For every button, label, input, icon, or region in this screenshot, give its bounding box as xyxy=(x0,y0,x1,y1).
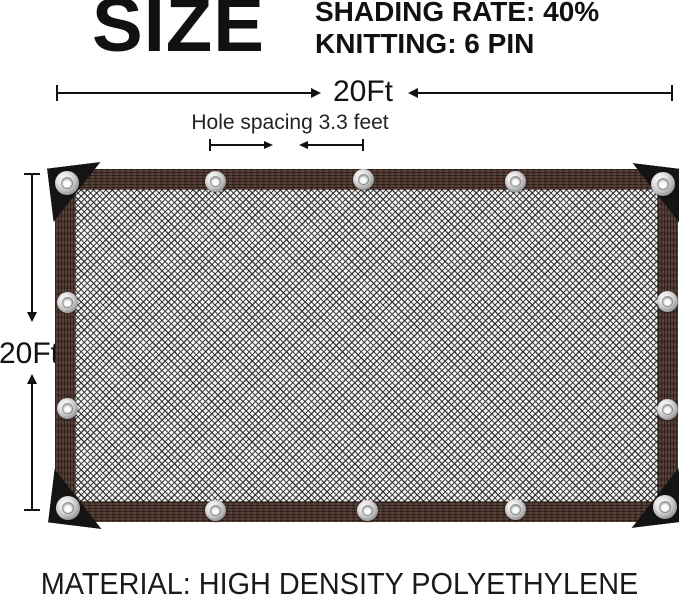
grommet xyxy=(357,500,378,521)
shade-net-graphic xyxy=(55,169,678,522)
arrow-left-icon xyxy=(408,88,418,98)
arrow-right-icon xyxy=(264,141,273,149)
dimension-tick xyxy=(362,139,364,151)
arrow-down-icon xyxy=(27,312,37,322)
dimension-line xyxy=(307,144,363,146)
dimension-line xyxy=(56,92,312,94)
dimension-tick xyxy=(671,85,673,101)
net-mesh xyxy=(75,189,658,502)
height-label: 20Ft xyxy=(0,338,61,370)
grommet-hole xyxy=(211,506,220,515)
grommet-hole xyxy=(658,179,668,189)
grommet xyxy=(56,496,80,520)
grommet xyxy=(505,171,526,192)
material-text: MATERIAL: HIGH DENSITY POLYETHYLENE xyxy=(24,567,655,601)
grommet-hole xyxy=(63,503,73,513)
width-label: 20Ft xyxy=(320,76,406,108)
grommet-hole xyxy=(363,506,372,515)
grommet-hole xyxy=(511,505,520,514)
spec-block: SHADING RATE: 40% KNITTING: 6 PIN xyxy=(315,0,599,60)
grommet-hole xyxy=(211,177,220,186)
grommet xyxy=(57,398,78,419)
dimension-line xyxy=(31,174,33,313)
grommet xyxy=(55,171,79,195)
net-border-right xyxy=(658,169,678,522)
grommet xyxy=(57,292,78,313)
dimension-tick xyxy=(24,509,40,511)
grommet xyxy=(651,172,675,196)
grommet-hole xyxy=(663,405,672,414)
grommet-hole xyxy=(663,297,672,306)
grommet xyxy=(653,495,677,519)
grommet-hole xyxy=(359,175,368,184)
grommet xyxy=(505,499,526,520)
grommet xyxy=(205,500,226,521)
grommet-hole xyxy=(511,177,520,186)
grommet-hole xyxy=(62,178,72,188)
grommet xyxy=(657,291,678,312)
grommet-hole xyxy=(63,298,72,307)
dimension-line xyxy=(209,144,267,146)
shading-rate-text: SHADING RATE: 40% xyxy=(315,0,599,28)
size-title: SIZE xyxy=(92,0,265,66)
dimension-line xyxy=(31,384,33,510)
dimension-line xyxy=(418,92,672,94)
hole-spacing-label: Hole spacing 3.3 feet xyxy=(160,111,420,135)
grommet xyxy=(353,169,374,190)
grommet-hole xyxy=(660,502,670,512)
grommet-hole xyxy=(63,404,72,413)
product-size-diagram: SIZE SHADING RATE: 40% KNITTING: 6 PIN 2… xyxy=(0,0,679,601)
net-border-left xyxy=(55,169,75,522)
arrow-up-icon xyxy=(27,374,37,384)
grommet xyxy=(205,171,226,192)
grommet xyxy=(657,399,678,420)
knitting-text: KNITTING: 6 PIN xyxy=(315,28,599,60)
